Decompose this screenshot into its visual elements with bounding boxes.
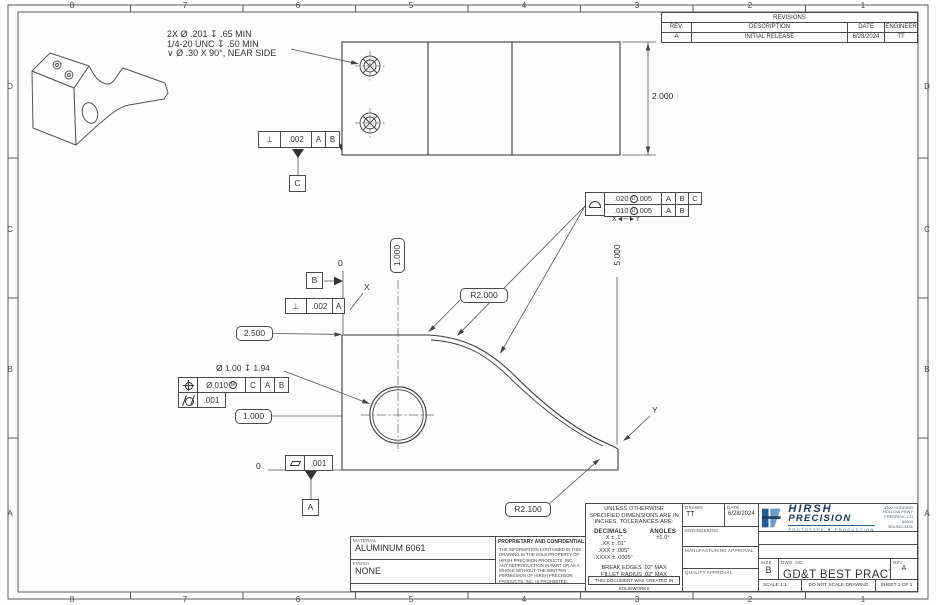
angles-label: ANGLES [650, 529, 676, 535]
tolerance-line: .XXX ± .005" [594, 548, 633, 555]
angles-value: ±1.0° [650, 535, 676, 542]
arrowheads [335, 43, 651, 465]
engineering-label: ENGINEERING [683, 527, 758, 533]
solidworks-note: THIS DOCUMENT WAS CREATED IN SOLIDWORKS [588, 576, 680, 585]
break-edges-note: BREAK EDGES .02" MAX [586, 565, 682, 572]
drawing-title: GD&T BEST PRACTICES [779, 569, 890, 579]
unequal-modifier-icon: U [630, 195, 638, 203]
perpendicularity-icon: ⊥ [286, 299, 306, 313]
quality-approval-label: QUALITY APPROVAL [683, 569, 758, 575]
revision-date: 6/28/2024 [847, 33, 884, 43]
zone-label: 7 [178, 1, 192, 10]
finish-value: NONE [351, 566, 495, 576]
fcf-datum: A [661, 193, 675, 204]
datum-triangles [292, 149, 343, 480]
fcf-datum: B [675, 193, 688, 204]
revisions-header-row: REV. DESCRIPTION DATE ENGINEER [662, 23, 917, 33]
revisions-title: REVISIONS [662, 13, 917, 23]
tolerance-line: .X ± .1" [594, 535, 633, 542]
comments-row [758, 531, 918, 545]
note-line: ∨ Ø .30 X 90°, NEAR SIDE [167, 49, 276, 59]
revision-rev: A [662, 33, 691, 43]
zone-label: A [920, 509, 934, 518]
drawing-sheet: 8 7 6 5 4 3 2 1 8 7 6 5 4 3 2 1 D C B A … [0, 0, 936, 605]
datum-box-c: C [289, 175, 306, 192]
zone-label: 3 [630, 595, 644, 604]
fcf-datum: C [688, 193, 701, 204]
fcf-datum: A [661, 205, 675, 216]
drawn-by: TT [683, 510, 724, 518]
cylindricity-icon [182, 395, 195, 406]
size-value: B [759, 565, 778, 575]
material-block: MATERIAL ALUMINUM 6061 FINISH NONE PROPR… [350, 536, 586, 592]
fcf-tolerance: .002 [280, 132, 311, 147]
fcf-datum: A [332, 299, 344, 313]
dimension-lines [268, 42, 656, 470]
unequal-modifier-icon: U [630, 207, 638, 215]
fcf-tolerance: Ø.010M [197, 378, 245, 392]
zone-label: D [3, 82, 17, 91]
tolerance-block: UNLESS OTHERWISE SPECIFIED DIMENSIONS AR… [585, 503, 683, 592]
scale-value: SCALE 1:1 [759, 580, 801, 591]
zone-label: 7 [178, 595, 192, 604]
fcf-tolerance: .001 [304, 456, 332, 470]
ordinate-origin-y: 0 [256, 461, 261, 471]
point-y-label: Y [652, 405, 658, 415]
company-logo: HIRSH PRECISION PROTOTYPE ▼ PRODUCTION 4… [758, 503, 918, 532]
datum-box-b: B [306, 272, 323, 289]
zone-label: D [920, 82, 934, 91]
basic-dim-hole-x: 1.000 [390, 238, 405, 273]
profile-of-surface-icon [589, 201, 601, 208]
iso-view [32, 53, 168, 145]
hole-size-callout: Ø 1.00 ↧ 1.94 [216, 363, 270, 374]
fcf-datum: B [675, 205, 688, 216]
fcf-datum: B [325, 132, 339, 147]
top-view [342, 42, 620, 155]
revisions-header: DATE [847, 23, 884, 32]
zone-label: 1 [856, 595, 870, 604]
comments-row [758, 544, 918, 559]
position-icon [183, 380, 194, 391]
proprietary-title: PROPRIETARY AND CONFIDENTIAL [496, 537, 586, 546]
fcf-perpendicularity-top: ⊥ .002 A B [258, 131, 340, 148]
hirsh-logo-icon [761, 506, 785, 530]
zone-label: 8 [65, 1, 79, 10]
tolerance-line: .XXXX ± .0005" [594, 555, 633, 562]
zone-label: C [920, 225, 934, 234]
hole-callout-note: 2X Ø .201 ↧ .65 MIN 1/4-20 UNC ↧ .50 MIN… [167, 30, 276, 59]
zone-label: 4 [517, 1, 531, 10]
revisions-header: REV. [662, 23, 691, 32]
fcf-tolerance: .020U.005 [605, 193, 661, 204]
fcf-datum: A [260, 378, 274, 392]
do-not-scale-note: DO NOT SCALE DRAWING [801, 580, 875, 591]
leader-lines [284, 49, 650, 504]
basic-dim-radius-upper: R2.000 [460, 288, 508, 303]
revision-engineer: TT [884, 33, 917, 43]
dim-top-width: 2.000 [652, 91, 673, 101]
fcf-perpendicularity-left: ⊥ .002 A [285, 298, 345, 314]
zone-label: 1 [856, 1, 870, 10]
rev-value: A [891, 565, 917, 572]
dwg-no-label: DWG. NO. [779, 559, 890, 565]
logo-name-line1: HIRSH [788, 504, 874, 514]
revision-row: A INITIAL RELEASE 6/28/2024 TT [662, 33, 917, 43]
fcf-datum: B [274, 378, 288, 392]
basic-dim-radius-lower: R2.100 [505, 502, 551, 517]
revisions-table: REVISIONS REV. DESCRIPTION DATE ENGINEER… [661, 12, 918, 43]
basic-dim-height: 2.500 [236, 326, 273, 341]
logo-name-line2: PRECISION [788, 514, 874, 524]
datum-box-a: A [302, 499, 319, 516]
zone-label: 2 [743, 1, 757, 10]
revision-description: INITIAL RELEASE [691, 33, 847, 43]
zone-label: 4 [517, 595, 531, 604]
fcf-tolerance: .001 [197, 393, 225, 407]
fcf-position: Ø.010M C A B [178, 377, 289, 393]
zone-label: C [3, 225, 17, 234]
fcf-datum: C [245, 378, 260, 392]
zone-label: 6 [291, 1, 305, 10]
approvals-block: DRAWN TT DATE 6/28/2024 ENGINEERING MANU… [682, 503, 759, 592]
zone-label: 6 [291, 595, 305, 604]
zone-label: 2 [743, 595, 757, 604]
front-view [342, 335, 618, 470]
fcf-cylindricity: .001 [178, 392, 226, 408]
fcf-datum: A [311, 132, 325, 147]
zone-label: B [3, 365, 17, 374]
dim-overall-width: 5.000 [612, 237, 622, 273]
zone-label: 3 [630, 1, 644, 10]
basic-dim-hole-y: 1.000 [235, 409, 272, 424]
drawn-date: 6/28/2024 [725, 510, 758, 517]
tolerance-line: .XX ± .01" [594, 541, 633, 548]
tolerance-header: UNLESS OTHERWISE SPECIFIED DIMENSIONS AR… [586, 504, 682, 527]
material-value: ALUMINUM 6061 [351, 543, 495, 553]
zone-label: 8 [65, 595, 79, 604]
zone-label: 5 [404, 1, 418, 10]
manufacturing-approval-label: MANUFACTURING APPROVAL [683, 547, 758, 553]
ordinate-origin-x: 0 [338, 258, 343, 268]
revisions-header: ENGINEER [884, 23, 917, 32]
profile-range-label: X◄─►Y [612, 216, 640, 223]
fcf-flatness: .001 [285, 455, 333, 471]
fcf-tolerance: .010U.005 [605, 205, 661, 216]
hole-centermarks [355, 51, 385, 138]
mmc-modifier-icon: M [229, 381, 237, 389]
decimals-label: DECIMALS [594, 529, 633, 535]
title-strip: SIZE B DWG. NO. GD&T BEST PRACTICES REV.… [758, 558, 918, 580]
zone-label: 5 [404, 595, 418, 604]
company-address: 4300 GODDING HOLLOW PKWY FREDRICK, CO 80… [875, 506, 915, 530]
scale-strip: SCALE 1:1 DO NOT SCALE DRAWING SHEET 1 O… [758, 579, 918, 592]
sheet-number: SHEET 1 OF 1 [875, 580, 917, 591]
point-x-label: X [364, 282, 370, 292]
perpendicularity-icon: ⊥ [259, 132, 280, 147]
zone-label: A [3, 509, 17, 518]
flatness-icon [289, 461, 301, 466]
revisions-header: DESCRIPTION [691, 23, 847, 32]
fcf-tolerance: .002 [306, 299, 332, 313]
proprietary-body: THE INFORMATION CONTAINED IN THIS DRAWIN… [496, 546, 586, 585]
zone-label: B [920, 365, 934, 374]
